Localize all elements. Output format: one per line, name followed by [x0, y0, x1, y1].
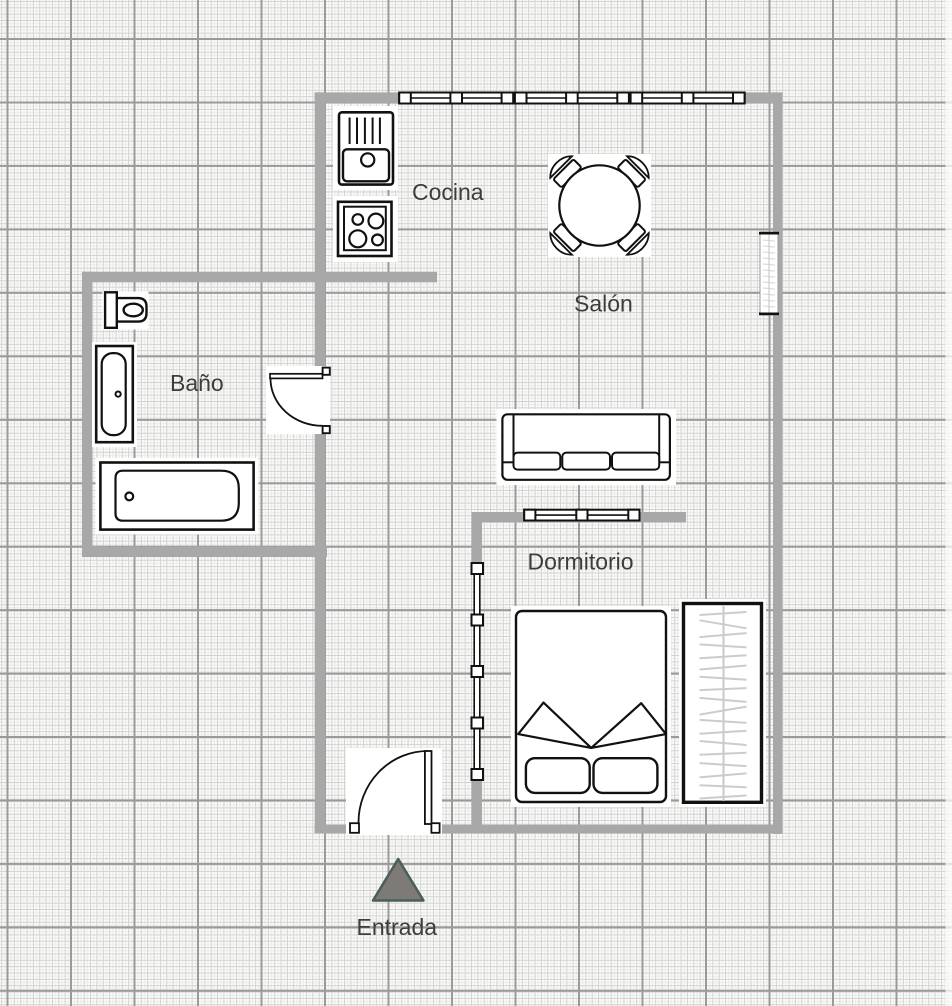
- svg-text:Baño: Baño: [170, 370, 224, 396]
- svg-text:Entrada: Entrada: [357, 914, 438, 940]
- svg-text:Cocina: Cocina: [412, 179, 484, 205]
- svg-text:Salón: Salón: [574, 291, 633, 317]
- svg-text:Dormitorio: Dormitorio: [528, 549, 634, 575]
